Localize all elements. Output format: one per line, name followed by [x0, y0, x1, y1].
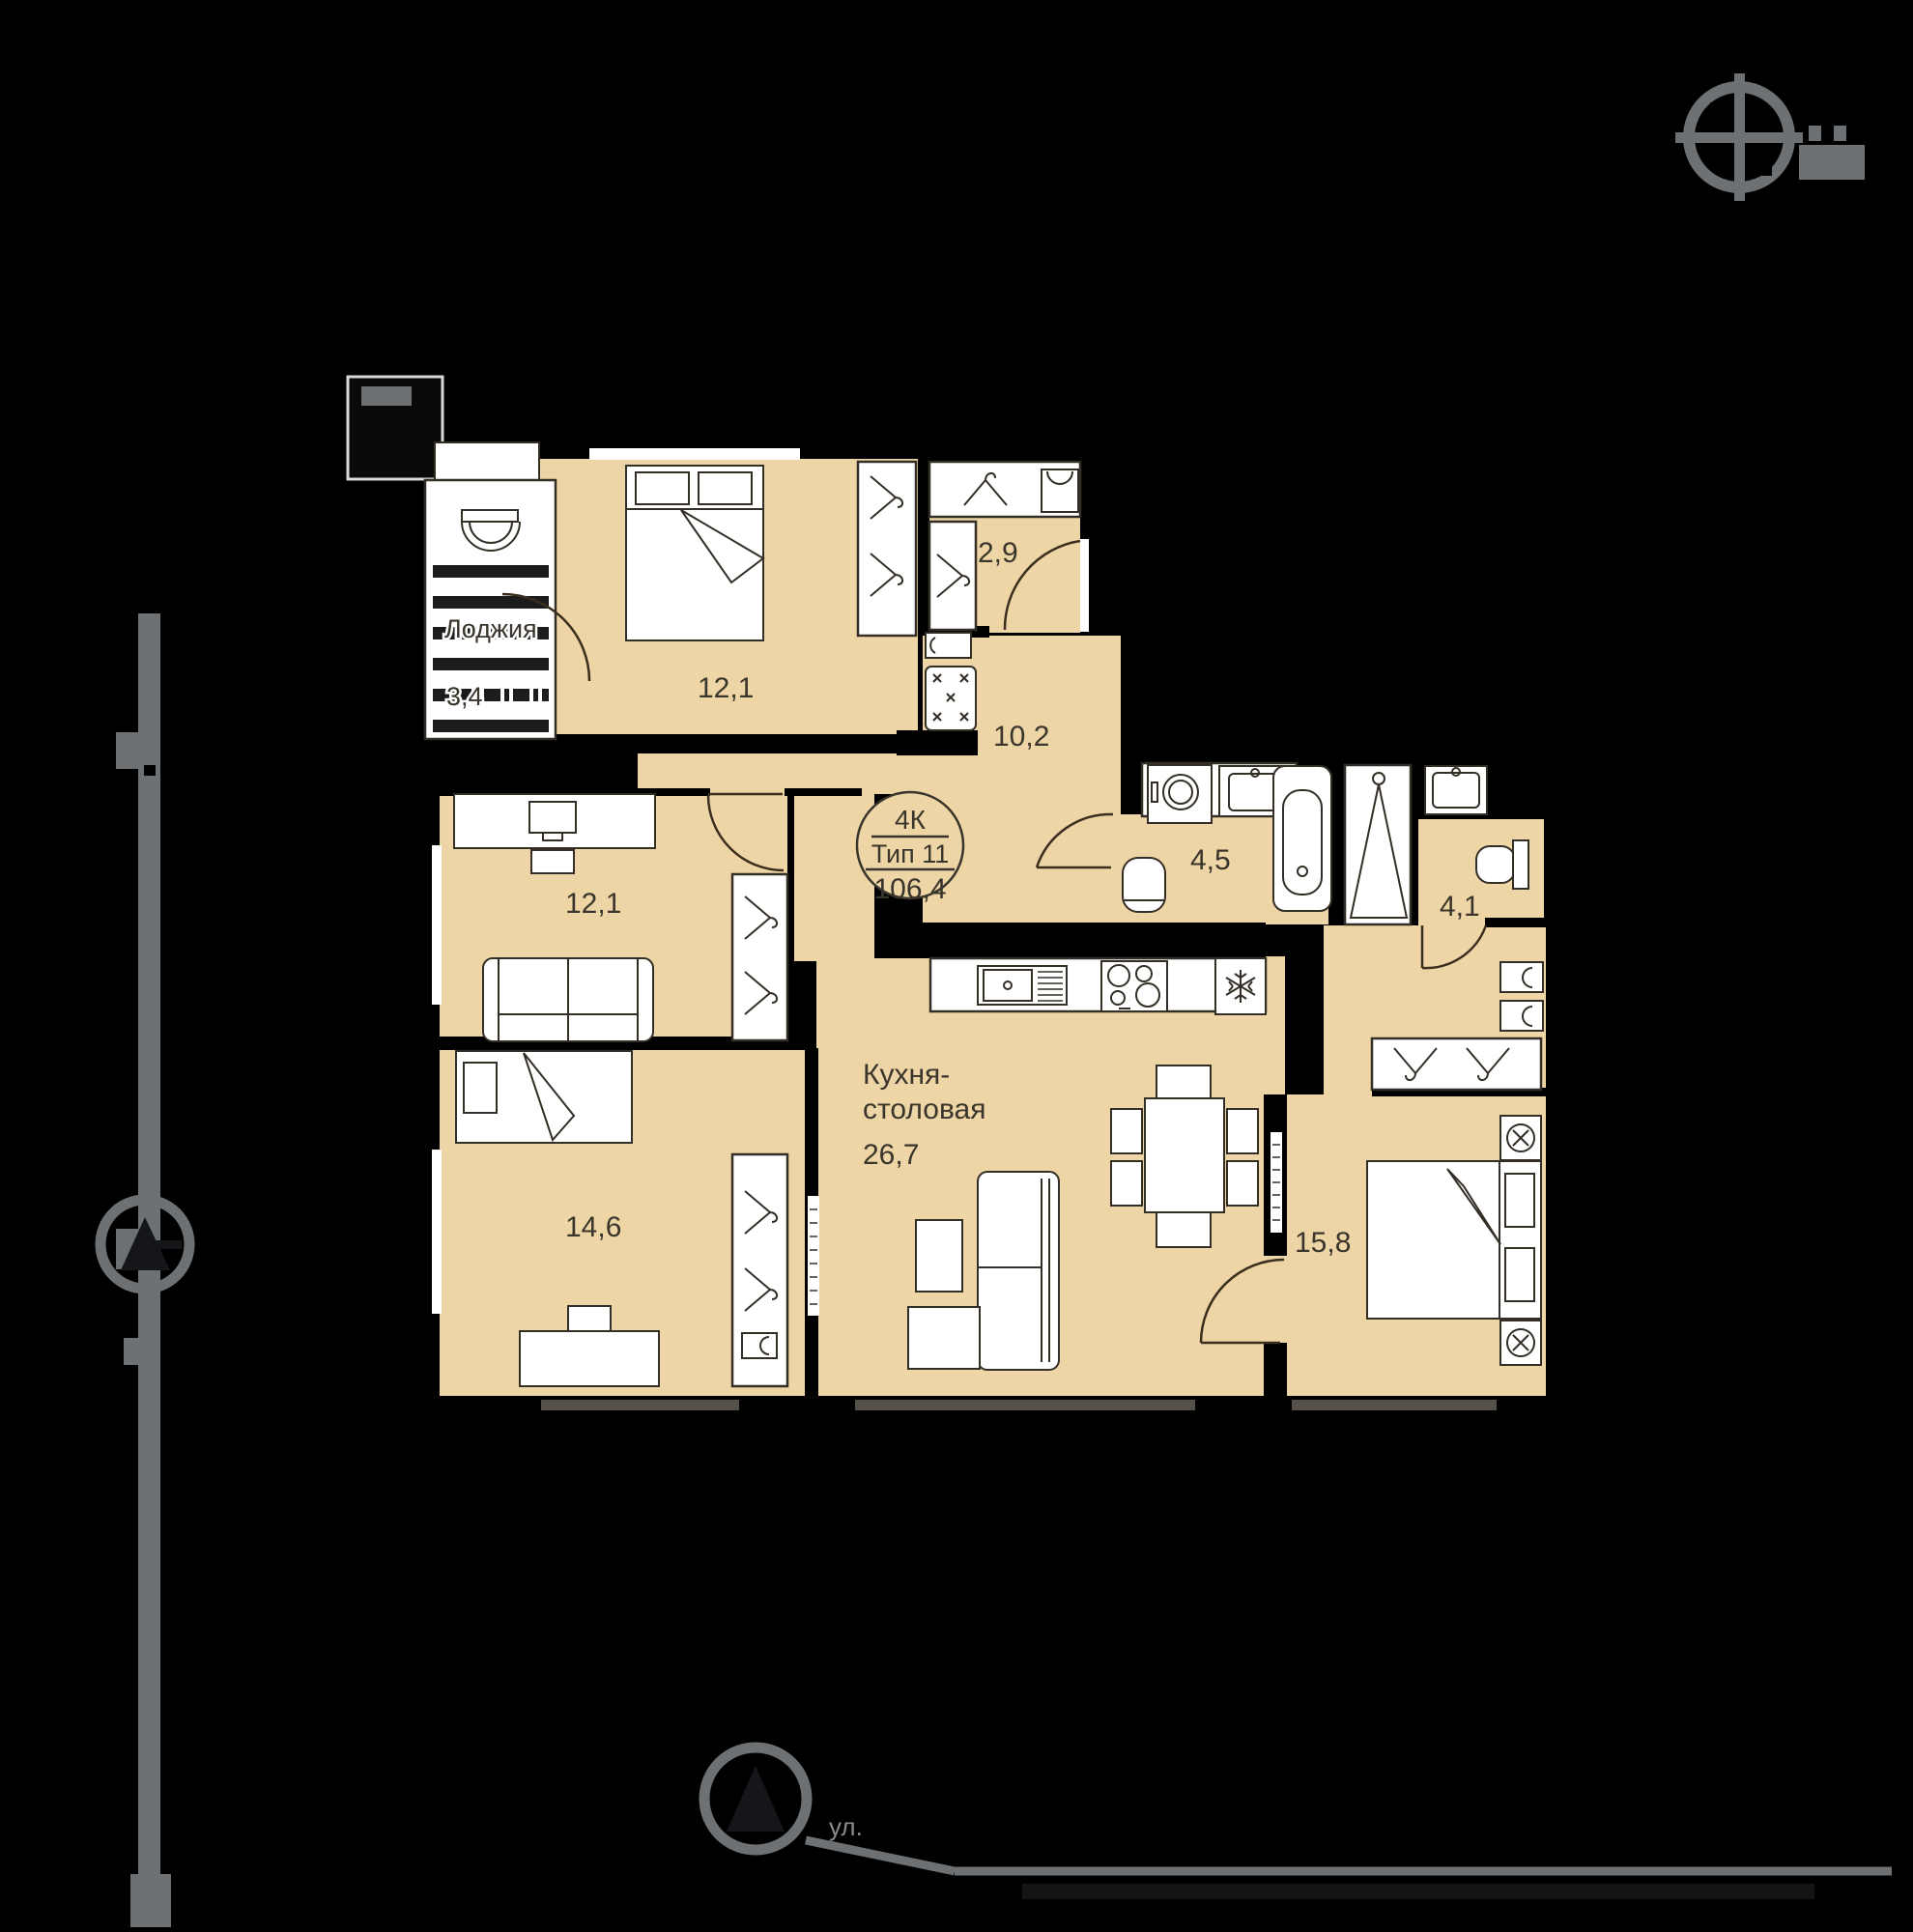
double-bed-icon [1367, 1161, 1541, 1319]
window-left [432, 845, 442, 1005]
info-total-area: 106,4 [873, 873, 946, 905]
washing-machine-icon [1148, 765, 1212, 823]
room-bottom-area: 14,6 [565, 1211, 621, 1243]
bathtub-icon [1273, 766, 1331, 911]
loggia: Лоджия 3,4 [348, 377, 556, 739]
kitchen-sink-icon [978, 966, 1067, 1005]
cabinet-icon [926, 667, 976, 730]
sliding-door [808, 1196, 819, 1316]
wardrobe-icon [732, 874, 787, 1040]
window-top [589, 448, 800, 460]
double-bed-icon [626, 466, 763, 640]
window-left [432, 1150, 442, 1314]
bathroom-area: 4,5 [1190, 844, 1231, 876]
entrance-door-leaf [1080, 539, 1089, 632]
bedroom-right-area: 15,8 [1295, 1227, 1351, 1259]
kitchen-area: 26,7 [863, 1139, 919, 1171]
vent-shaft [1345, 765, 1411, 924]
sink-icon [1425, 766, 1487, 814]
compass-icon [1675, 73, 1865, 201]
bedroom-top-area: 12,1 [698, 672, 754, 704]
info-plan-type: Тип 11 [871, 839, 950, 868]
toilet-area: 4,1 [1440, 891, 1480, 923]
sofa-icon [483, 958, 653, 1041]
shirt-icon [1042, 469, 1078, 512]
toilet-icon [1123, 858, 1165, 912]
hall-wardrobe-icon [1372, 1038, 1541, 1090]
street-marker-bottom: ул. [704, 1747, 1892, 1899]
loggia-area: 3,4 [446, 682, 483, 711]
wardrobe-icon [732, 1154, 787, 1386]
single-bed-icon [456, 1051, 632, 1143]
street-label: ул. [829, 1812, 863, 1841]
wardrobe-area: 2,9 [978, 537, 1018, 569]
toilet-icon [1476, 840, 1528, 889]
floor-plan-canvas: ул. [0, 0, 1913, 1932]
coffee-table-icon [916, 1220, 962, 1292]
kitchen-name-line2: столовая [863, 1094, 986, 1125]
cooktop-icon [1101, 961, 1167, 1011]
room-left-area: 12,1 [565, 888, 621, 920]
floor-plan-page: ул. [0, 0, 1913, 1932]
glass-partition [1271, 1132, 1282, 1233]
fridge-icon [1215, 958, 1266, 1014]
console-icon [926, 633, 971, 658]
wardrobe-shelf-left [929, 522, 976, 630]
wardrobe-niche-icon [858, 462, 916, 636]
hallway-area: 10,2 [993, 721, 1049, 753]
exterior-slabs [541, 1400, 1497, 1410]
loggia-name: Лоджия [444, 614, 537, 643]
info-rooms-type: 4К [895, 805, 927, 835]
kitchen-name-line1: Кухня- [863, 1059, 950, 1091]
